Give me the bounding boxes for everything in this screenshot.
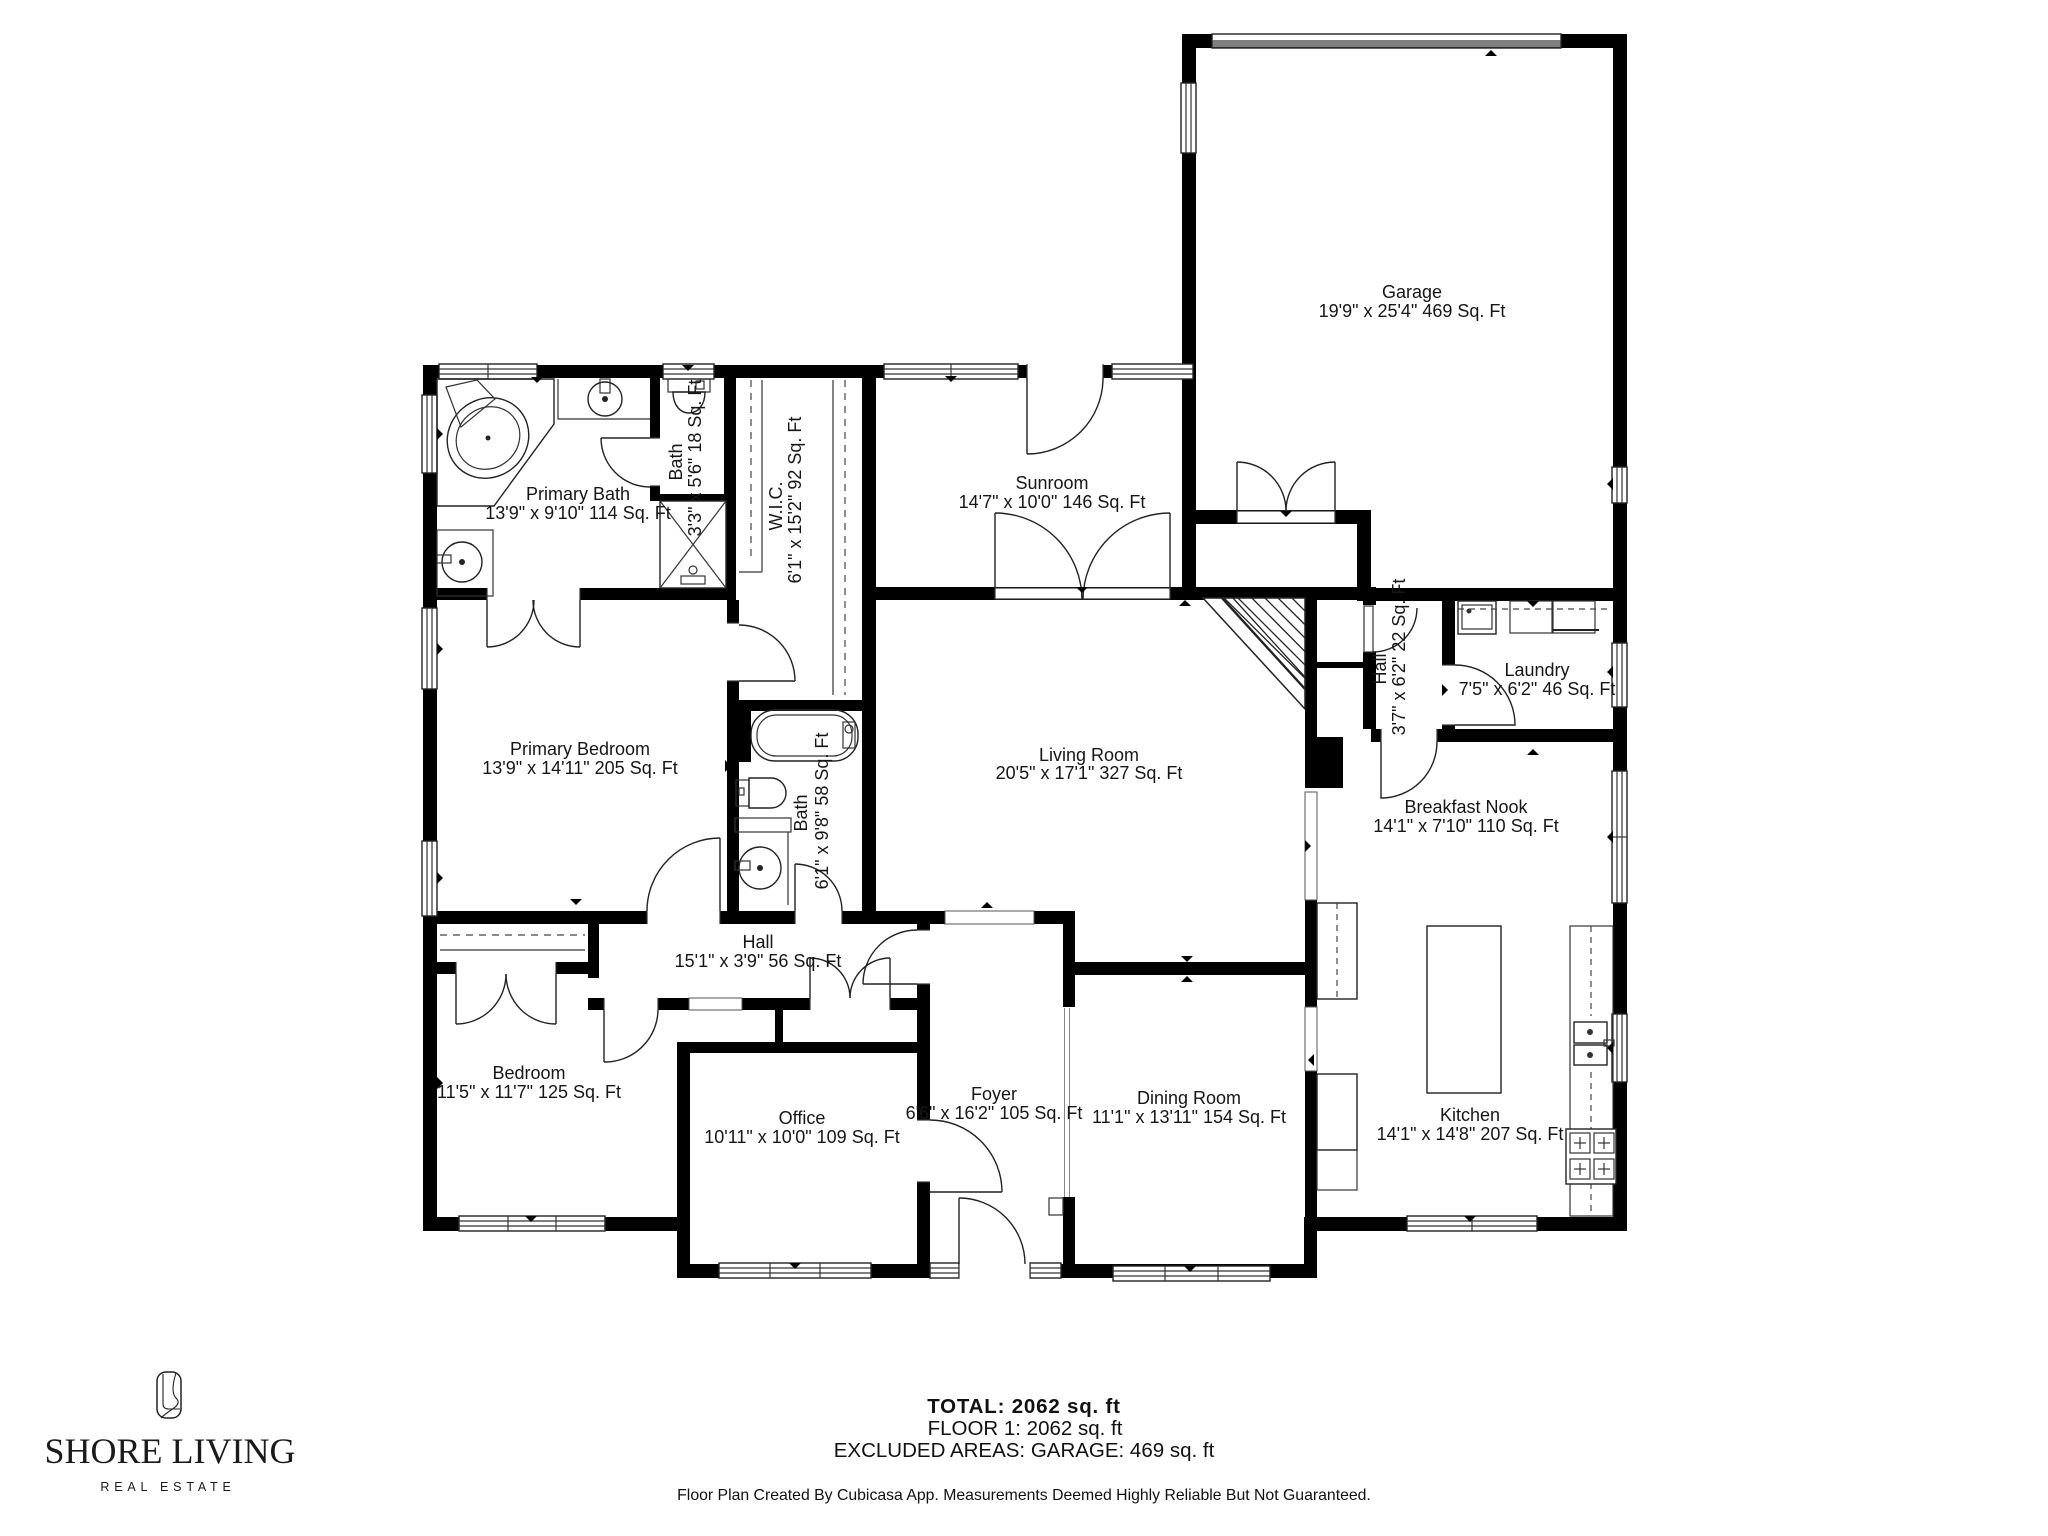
svg-text:6'1" x 15'2" 92 Sq. Ft: 6'1" x 15'2" 92 Sq. Ft bbox=[785, 417, 805, 584]
svg-text:Hall: Hall bbox=[742, 932, 773, 952]
svg-text:Primary Bedroom: Primary Bedroom bbox=[510, 739, 650, 759]
svg-text:7'5" x 6'2" 46 Sq. Ft: 7'5" x 6'2" 46 Sq. Ft bbox=[1459, 679, 1616, 699]
svg-text:14'1" x 7'10" 110 Sq. Ft: 14'1" x 7'10" 110 Sq. Ft bbox=[1373, 816, 1558, 836]
svg-text:11'1" x 13'11" 154 Sq. Ft: 11'1" x 13'11" 154 Sq. Ft bbox=[1092, 1107, 1286, 1127]
svg-text:Breakfast Nook: Breakfast Nook bbox=[1404, 797, 1528, 817]
svg-text:TOTAL: 2062 sq. ft: TOTAL: 2062 sq. ft bbox=[927, 1395, 1121, 1418]
svg-text:SHORE LIVING: SHORE LIVING bbox=[45, 1431, 296, 1471]
svg-text:14'1" x 14'8" 207 Sq. Ft: 14'1" x 14'8" 207 Sq. Ft bbox=[1377, 1124, 1564, 1144]
svg-text:Bedroom: Bedroom bbox=[492, 1063, 565, 1083]
svg-text:20'5" x 17'1" 327 Sq. Ft: 20'5" x 17'1" 327 Sq. Ft bbox=[996, 763, 1183, 783]
svg-text:13'9" x 14'11" 205 Sq. Ft: 13'9" x 14'11" 205 Sq. Ft bbox=[482, 758, 677, 778]
svg-text:Floor Plan Created By Cubicasa: Floor Plan Created By Cubicasa App. Meas… bbox=[677, 1487, 1371, 1504]
svg-text:13'9" x 9'10" 114 Sq. Ft: 13'9" x 9'10" 114 Sq. Ft bbox=[485, 503, 670, 523]
svg-text:14'7" x 10'0" 146 Sq. Ft: 14'7" x 10'0" 146 Sq. Ft bbox=[959, 492, 1146, 512]
svg-text:REAL ESTATE: REAL ESTATE bbox=[100, 1480, 235, 1494]
svg-text:19'9" x 25'4" 469 Sq. Ft: 19'9" x 25'4" 469 Sq. Ft bbox=[1319, 301, 1506, 321]
svg-text:Laundry: Laundry bbox=[1504, 660, 1569, 680]
svg-text:6'6" x 16'2" 105 Sq. Ft: 6'6" x 16'2" 105 Sq. Ft bbox=[906, 1103, 1083, 1123]
svg-text:Foyer: Foyer bbox=[971, 1084, 1017, 1104]
svg-text:Office: Office bbox=[779, 1108, 826, 1128]
svg-text:EXCLUDED AREAS: GARAGE: 469 sq: EXCLUDED AREAS: GARAGE: 469 sq. ft bbox=[834, 1439, 1215, 1462]
svg-text:Bath: Bath bbox=[791, 794, 811, 831]
svg-text:Hall: Hall bbox=[1370, 653, 1390, 684]
svg-text:10'11" x 10'0" 109 Sq. Ft: 10'11" x 10'0" 109 Sq. Ft bbox=[704, 1127, 899, 1147]
svg-text:Dining Room: Dining Room bbox=[1137, 1088, 1241, 1108]
svg-text:Kitchen: Kitchen bbox=[1440, 1105, 1500, 1125]
svg-text:6'1" x 9'8" 58 Sq. Ft: 6'1" x 9'8" 58 Sq. Ft bbox=[812, 733, 832, 890]
svg-text:3'7" x 6'2" 22 Sq. Ft: 3'7" x 6'2" 22 Sq. Ft bbox=[1389, 579, 1409, 736]
svg-text:Living Room: Living Room bbox=[1039, 745, 1139, 765]
svg-text:Sunroom: Sunroom bbox=[1015, 473, 1088, 493]
svg-text:11'5" x 11'7" 125 Sq. Ft: 11'5" x 11'7" 125 Sq. Ft bbox=[437, 1082, 621, 1102]
svg-text:Primary Bath: Primary Bath bbox=[526, 484, 630, 504]
svg-text:3'3" x 5'6" 18 Sq. Ft: 3'3" x 5'6" 18 Sq. Ft bbox=[685, 380, 705, 537]
svg-text:FLOOR 1: 2062 sq. ft: FLOOR 1: 2062 sq. ft bbox=[928, 1417, 1123, 1440]
svg-text:15'1" x 3'9" 56 Sq. Ft: 15'1" x 3'9" 56 Sq. Ft bbox=[675, 951, 842, 971]
svg-text:Garage: Garage bbox=[1382, 282, 1442, 302]
svg-text:Bath: Bath bbox=[666, 443, 686, 480]
svg-text:W.I.C.: W.I.C. bbox=[766, 482, 786, 531]
